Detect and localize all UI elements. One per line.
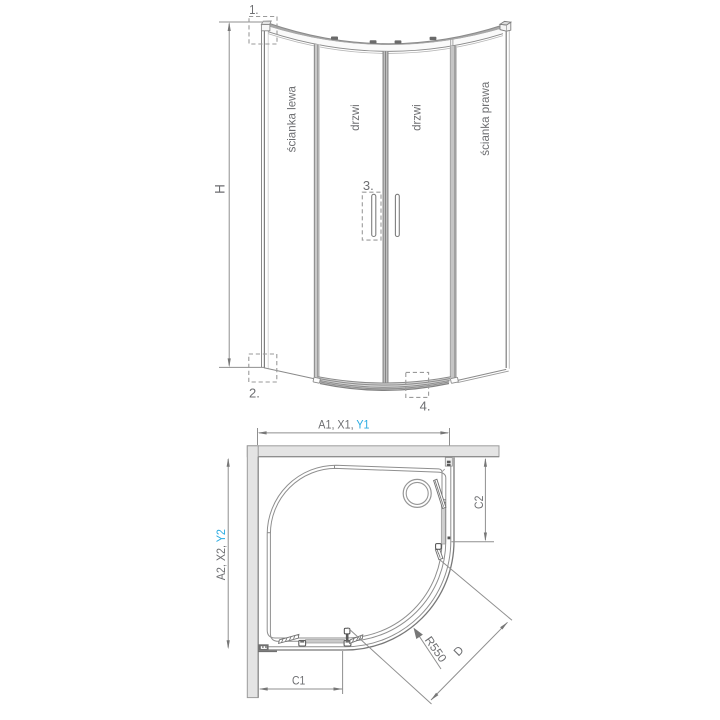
svg-text:A1, X1, Y1: A1, X1, Y1 (318, 419, 369, 432)
svg-text:A2, X2, Y2: A2, X2, Y2 (215, 529, 228, 580)
svg-text:3.: 3. (363, 178, 374, 193)
svg-text:2.: 2. (249, 386, 260, 401)
svg-text:drzwi: drzwi (411, 104, 424, 131)
svg-text:ścianka lewa: ścianka lewa (286, 86, 299, 153)
svg-text:ścianka prawa: ścianka prawa (479, 81, 492, 156)
svg-text:H: H (213, 184, 228, 194)
svg-text:1.: 1. (249, 2, 258, 17)
svg-text:C2: C2 (473, 496, 486, 509)
svg-text:C1: C1 (292, 675, 305, 688)
svg-text:4.: 4. (420, 398, 431, 413)
svg-text:drzwi: drzwi (349, 104, 362, 131)
